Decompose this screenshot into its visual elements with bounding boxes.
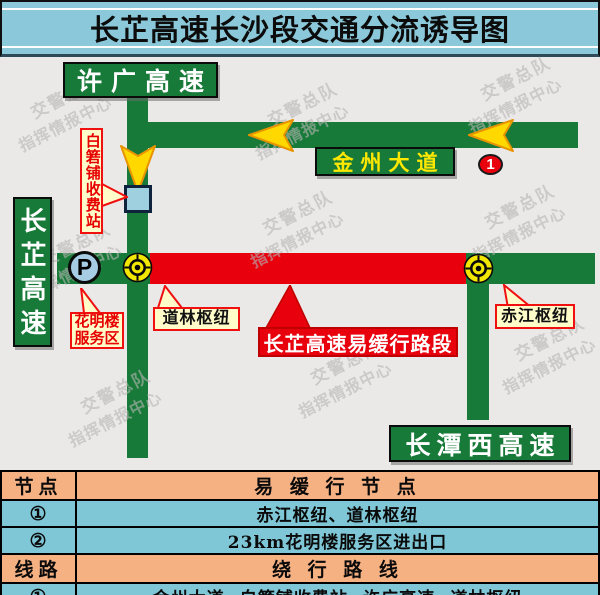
parking-letter: P bbox=[77, 254, 92, 281]
chijiang-interchange-icon bbox=[463, 253, 494, 284]
row-num-cell: ① bbox=[1, 500, 76, 527]
header-cell-route: 线路 bbox=[1, 554, 76, 583]
page-title: 长芷高速长沙段交通分流诱导图 bbox=[90, 7, 510, 49]
header-cell-node: 节点 bbox=[1, 471, 76, 500]
sign-text: 许广高速 bbox=[77, 62, 213, 98]
slow-section-pointer bbox=[264, 285, 312, 329]
road-slow-section bbox=[150, 253, 466, 284]
table-row: ① 金州大道↔白箬铺收费站↔许广高速↔道林枢纽 bbox=[1, 583, 599, 595]
callout-baizhupu-tollgate: 白箬铺收费站 bbox=[80, 128, 103, 234]
table-row: ① 赤江枢纽、道林枢纽 bbox=[1, 500, 599, 527]
traffic-guidance-poster: 长芷高速长沙段交通分流诱导图 交警总队指挥情报中心 交警总队指挥情报中心 交警总… bbox=[0, 0, 600, 595]
sign-changtanxi-expressway: 长潭西高速 bbox=[389, 425, 571, 462]
sign-xuguang-expressway: 许广高速 bbox=[63, 62, 218, 98]
table-header-nodes: 节点 易 缓 行 节 点 bbox=[1, 471, 599, 500]
table-row: ② 23km花明楼服务区进出口 bbox=[1, 527, 599, 554]
node-1-badge: 1 bbox=[478, 154, 503, 175]
info-table: 节点 易 缓 行 节 点 ① 赤江枢纽、道林枢纽 ② 23km花明楼服务区进出口… bbox=[0, 470, 600, 595]
header-cell-slow-nodes: 易 缓 行 节 点 bbox=[76, 471, 599, 500]
daolin-interchange-icon bbox=[122, 252, 153, 283]
parking-icon: P bbox=[68, 251, 101, 284]
watermark-line1: 交警总队 bbox=[476, 49, 555, 106]
node-1-number: 1 bbox=[486, 156, 494, 173]
sign-changzhi-expressway: 长芷高速 bbox=[13, 197, 52, 347]
callout-huaminglou-service-area: 花明楼 服务区 bbox=[70, 312, 124, 349]
service-area-callout-pointer bbox=[76, 288, 102, 314]
watermark-line1: 交警总队 bbox=[480, 177, 559, 234]
callout-text-line2: 服务区 bbox=[74, 331, 119, 348]
sign-text: 长潭西高速 bbox=[405, 426, 560, 462]
table-header-routes: 线路 绕 行 路 线 bbox=[1, 554, 599, 583]
left-arrow-icon bbox=[248, 119, 294, 152]
toll-station-icon bbox=[124, 185, 152, 213]
header-cell-detour: 绕 行 路 线 bbox=[76, 554, 599, 583]
title-inner-panel: 长芷高速长沙段交通分流诱导图 bbox=[2, 8, 598, 48]
daolin-callout-pointer bbox=[155, 285, 185, 309]
row-value-cell: 金州大道↔白箬铺收费站↔许广高速↔道林枢纽 bbox=[76, 583, 599, 595]
row-num-cell: ② bbox=[1, 527, 76, 554]
callout-text-line1: 花明楼 bbox=[74, 314, 119, 331]
banner-text: 长芷高速易缓行路段 bbox=[264, 328, 453, 357]
map-area: 交警总队指挥情报中心 交警总队指挥情报中心 交警总队指挥情报中心 交警总队指挥情… bbox=[0, 57, 600, 470]
callout-text: 道林枢纽 bbox=[162, 310, 230, 328]
watermark-line1: 交警总队 bbox=[258, 183, 337, 240]
sign-text: 长芷高速 bbox=[14, 207, 51, 343]
callout-text: 赤江枢纽 bbox=[501, 308, 569, 326]
callout-text: 白箬铺收费站 bbox=[83, 133, 100, 229]
banner-slow-section: 长芷高速易缓行路段 bbox=[258, 327, 458, 357]
callout-daolin-interchange: 道林枢纽 bbox=[153, 307, 240, 331]
watermark-line2: 指挥情报中心 bbox=[64, 384, 166, 452]
watermark: 交警总队指挥情报中心 bbox=[52, 362, 165, 452]
tollgate-callout-pointer bbox=[102, 182, 128, 208]
row-value-cell: 赤江枢纽、道林枢纽 bbox=[76, 500, 599, 527]
watermark-line2: 指挥情报中心 bbox=[294, 355, 396, 423]
row-num-cell: ① bbox=[1, 583, 76, 595]
row-value-cell: 23km花明楼服务区进出口 bbox=[76, 527, 599, 554]
left-arrow-icon bbox=[468, 119, 514, 152]
road-changtanxi-vertical bbox=[467, 284, 489, 420]
watermark-line2: 指挥情报中心 bbox=[498, 331, 600, 399]
sign-jinzhou-avenue: 金州大道 bbox=[315, 147, 455, 176]
sign-text: 金州大道 bbox=[333, 147, 445, 177]
callout-chijiang-interchange: 赤江枢纽 bbox=[495, 304, 575, 329]
title-bar: 长芷高速长沙段交通分流诱导图 bbox=[0, 0, 600, 57]
